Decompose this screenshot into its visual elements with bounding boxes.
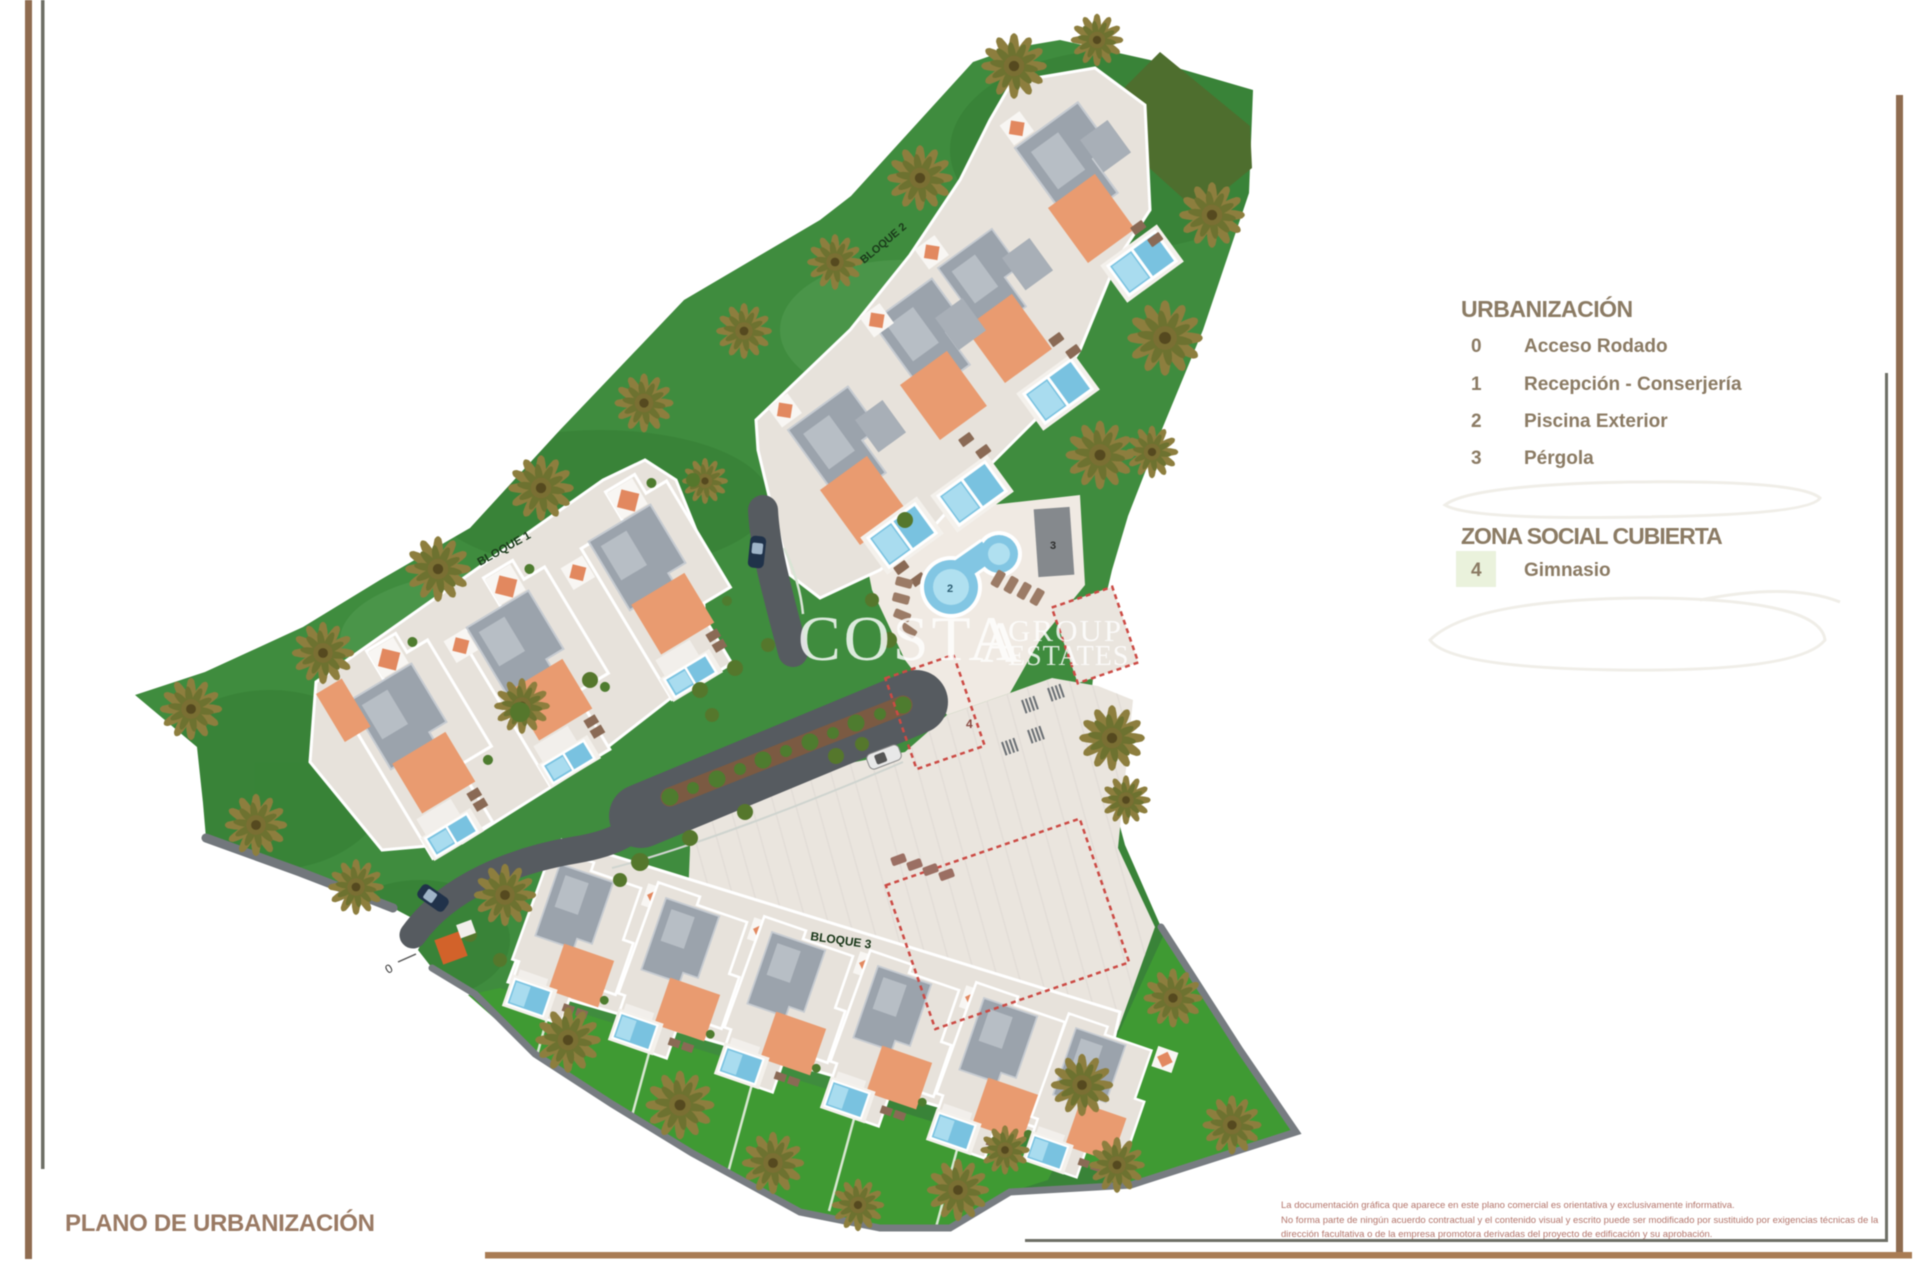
svg-text:2: 2 — [947, 583, 953, 595]
svg-text:1: 1 — [1471, 374, 1482, 395]
svg-text:Gimnasio: Gimnasio — [1524, 560, 1611, 581]
svg-text:4: 4 — [1471, 560, 1482, 581]
svg-text:3: 3 — [1050, 540, 1056, 552]
svg-text:Pérgola: Pérgola — [1524, 448, 1594, 469]
svg-text:PLANO DE URBANIZACIÓN: PLANO DE URBANIZACIÓN — [65, 1209, 375, 1237]
svg-text:No forma parte de ningún acuer: No forma parte de ningún acuerdo contrac… — [1281, 1215, 1879, 1226]
svg-text:ESTATES: ESTATES — [1008, 641, 1129, 672]
svg-text:2: 2 — [1471, 411, 1482, 432]
svg-text:4: 4 — [966, 717, 973, 731]
svg-text:Recepción - Conserjería: Recepción - Conserjería — [1524, 374, 1742, 395]
svg-text:Piscina Exterior: Piscina Exterior — [1524, 411, 1668, 432]
svg-text:ZONA SOCIAL CUBIERTA: ZONA SOCIAL CUBIERTA — [1461, 523, 1722, 549]
svg-text:dirección facultativa o de la: dirección facultativa o de la empresa pr… — [1281, 1229, 1712, 1240]
svg-text:URBANIZACIÓN: URBANIZACIÓN — [1461, 295, 1633, 322]
svg-text:La documentación gráfica que a: La documentación gráfica que aparece en … — [1281, 1200, 1735, 1211]
svg-text:0: 0 — [1471, 336, 1482, 357]
svg-text:Acceso Rodado: Acceso Rodado — [1524, 336, 1668, 357]
svg-text:3: 3 — [1471, 448, 1482, 469]
